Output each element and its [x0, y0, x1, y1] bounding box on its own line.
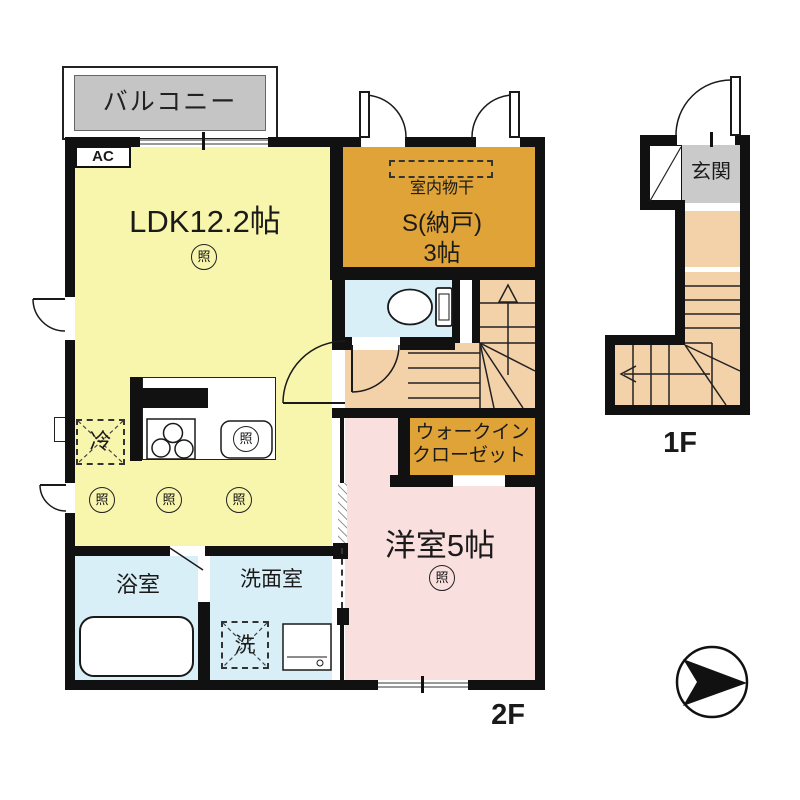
- indoor-drying-label: 室内物干: [380, 180, 504, 198]
- light-symbol: 照: [226, 487, 252, 513]
- f1-stairs: [685, 272, 740, 345]
- f1-entrance-step: [682, 203, 740, 211]
- wic-label-line1: ウォークイン: [410, 423, 535, 444]
- wall-segment: [65, 513, 75, 690]
- bedroom-label: 洋室5帖: [345, 529, 535, 563]
- f1-shoe-closet: [648, 145, 682, 203]
- washer-label: 洗: [221, 634, 269, 657]
- entrance-label: 玄関: [682, 161, 740, 183]
- storage-size-label: 3帖: [380, 241, 504, 267]
- wall-segment: [65, 137, 75, 297]
- wall-segment: [65, 340, 75, 483]
- wall-segment: [605, 335, 685, 345]
- ldk-label: LDK12.2帖: [75, 205, 335, 239]
- window-tick: [421, 676, 424, 693]
- wall-segment: [65, 546, 170, 556]
- entrance-door-icon: [676, 77, 740, 135]
- wall-segment: [468, 680, 545, 690]
- wall-segment: [740, 135, 750, 415]
- room-toilet: [345, 280, 452, 337]
- light-symbol: 照: [89, 487, 115, 513]
- door-tick: [710, 132, 713, 147]
- washroom-label: 洗面室: [214, 568, 329, 591]
- wic-door-opening: [453, 476, 505, 486]
- bath-door-opening: [198, 556, 210, 602]
- wall-segment: [337, 608, 349, 625]
- wall-segment: [472, 280, 480, 343]
- wall-segment: [130, 377, 142, 461]
- wall-segment: [605, 405, 750, 415]
- north-arrow-icon: [677, 647, 747, 717]
- bath-label: 浴室: [88, 573, 188, 597]
- light-symbol: 照: [156, 487, 182, 513]
- light-symbol: 照: [191, 244, 217, 270]
- fridge-label: 冷: [76, 430, 125, 454]
- storage-name-label: S(納戸): [380, 211, 504, 237]
- balcony-label: バルコニー: [74, 89, 266, 117]
- storage-window-icon: [360, 92, 519, 137]
- floorplan: バルコニー AC LDK12.2帖 室内物干 S(納戸) 3帖 ウォークイン ク…: [0, 0, 800, 800]
- wall-segment: [505, 475, 545, 487]
- wall-segment: [605, 335, 615, 415]
- wall-segment: [142, 388, 208, 408]
- light-symbol: 照: [429, 565, 455, 591]
- indoor-drying-box: [389, 160, 493, 178]
- wall-segment: [340, 418, 344, 483]
- wall-segment: [452, 280, 460, 343]
- wall-segment: [198, 602, 210, 690]
- wall-segment: [268, 137, 361, 147]
- wall-segment: [675, 200, 685, 345]
- ac-label: AC: [75, 149, 131, 166]
- f1-stair-winder: [615, 345, 740, 405]
- washroom-partition-dashed: [341, 548, 343, 608]
- floor1-label: 1F: [650, 428, 710, 460]
- wall-segment: [65, 680, 378, 690]
- f1-hall: [685, 211, 740, 267]
- light-symbol: 照: [233, 426, 259, 452]
- floor2-label: 2F: [478, 700, 538, 732]
- wall-segment: [332, 408, 545, 418]
- wall-segment: [640, 135, 650, 210]
- wall-segment: [340, 625, 344, 680]
- toilet-door-opening: [352, 337, 400, 350]
- wall-segment: [330, 267, 545, 280]
- wic-label-line2: クローゼット: [404, 446, 534, 467]
- window-tick: [202, 132, 205, 150]
- wall-segment: [390, 475, 453, 487]
- wall-segment: [332, 337, 352, 350]
- left-window-icon: [33, 299, 66, 511]
- wall-segment: [205, 546, 345, 556]
- wall-segment: [400, 337, 455, 350]
- stair-door-leaf: [460, 278, 472, 343]
- wall-segment: [405, 137, 476, 147]
